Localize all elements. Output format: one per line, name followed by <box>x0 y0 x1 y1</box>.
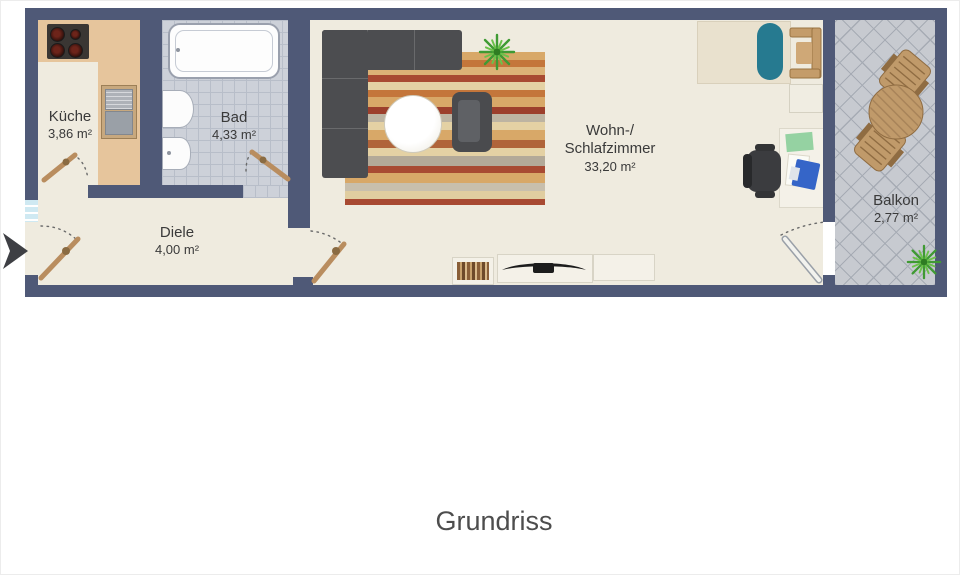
room-area-balkon: 2,77 m² <box>873 210 919 226</box>
toilet <box>162 90 194 128</box>
wall-hall-divider <box>88 185 243 198</box>
room-area-diele: 4,00 m² <box>155 242 199 258</box>
room-name-balkon: Balkon <box>873 192 919 210</box>
wall-left-lower <box>25 275 38 297</box>
stove <box>47 24 89 59</box>
floor-plan-canvas: Küche 3,86 m² Bad 4,33 m² Diele 4,00 m² … <box>0 0 960 575</box>
bathtub <box>168 23 280 79</box>
sideboard-books <box>452 257 494 285</box>
wall-bath-living <box>288 20 310 228</box>
room-label-diele: Diele 4,00 m² <box>155 224 199 258</box>
basin-faucet <box>167 151 171 155</box>
sink-basin-top <box>105 89 133 110</box>
wall-kitchen-bath <box>140 20 162 198</box>
room-label-balkon: Balkon 2,77 m² <box>873 192 919 226</box>
plan-title: Grundriss <box>435 506 552 537</box>
armchair <box>452 92 492 152</box>
tv-board <box>497 254 593 283</box>
room-label-wohn-schlafzimmer: Wohn-/ Schlafzimmer 33,20 m² <box>565 122 656 174</box>
room-name-kueche: Küche <box>48 108 92 126</box>
entrance-threshold <box>25 222 38 278</box>
bathtub-inner <box>175 30 273 72</box>
wash-basin <box>162 137 191 170</box>
wall-right <box>935 8 947 297</box>
entrance-sidelight-window <box>25 200 38 222</box>
armchair-seat <box>458 100 480 142</box>
kitchen-sink <box>101 85 137 139</box>
burner <box>68 43 83 58</box>
books <box>457 262 489 280</box>
bed-blanket-roll <box>757 23 783 80</box>
nightstand <box>789 84 823 113</box>
wall-living-balcony <box>823 20 835 222</box>
sofa-left-section <box>322 30 368 178</box>
bathtub-faucet <box>176 48 180 52</box>
room-name-wohn: Wohn-/ <box>565 122 656 140</box>
room-name-schlafzimmer: Schlafzimmer <box>565 140 656 158</box>
burner <box>70 29 81 40</box>
balcony-floor <box>835 20 935 285</box>
sink-basin-bottom <box>105 111 133 135</box>
room-label-kueche: Küche 3,86 m² <box>48 108 92 142</box>
coffee-table <box>384 95 442 153</box>
wall-bottom <box>25 285 947 297</box>
wall-stub-hall <box>293 277 313 286</box>
sideboard-cabinet <box>593 254 655 281</box>
room-area-bad: 4,33 m² <box>212 127 256 143</box>
wall-left-upper <box>25 8 38 200</box>
wall-top <box>25 8 947 20</box>
burner <box>50 27 65 42</box>
striped-rug <box>345 52 545 205</box>
room-label-bad: Bad 4,33 m² <box>212 109 256 143</box>
room-area-wohn-schlafzimmer: 33,20 m² <box>565 159 656 175</box>
room-name-diele: Diele <box>155 224 199 242</box>
desk-pad <box>785 132 813 152</box>
wall-stub-balcony <box>823 275 835 286</box>
bathroom-door-threshold <box>243 185 288 198</box>
room-name-bad: Bad <box>212 109 256 127</box>
room-area-kueche: 3,86 m² <box>48 126 92 142</box>
burner <box>50 43 65 58</box>
